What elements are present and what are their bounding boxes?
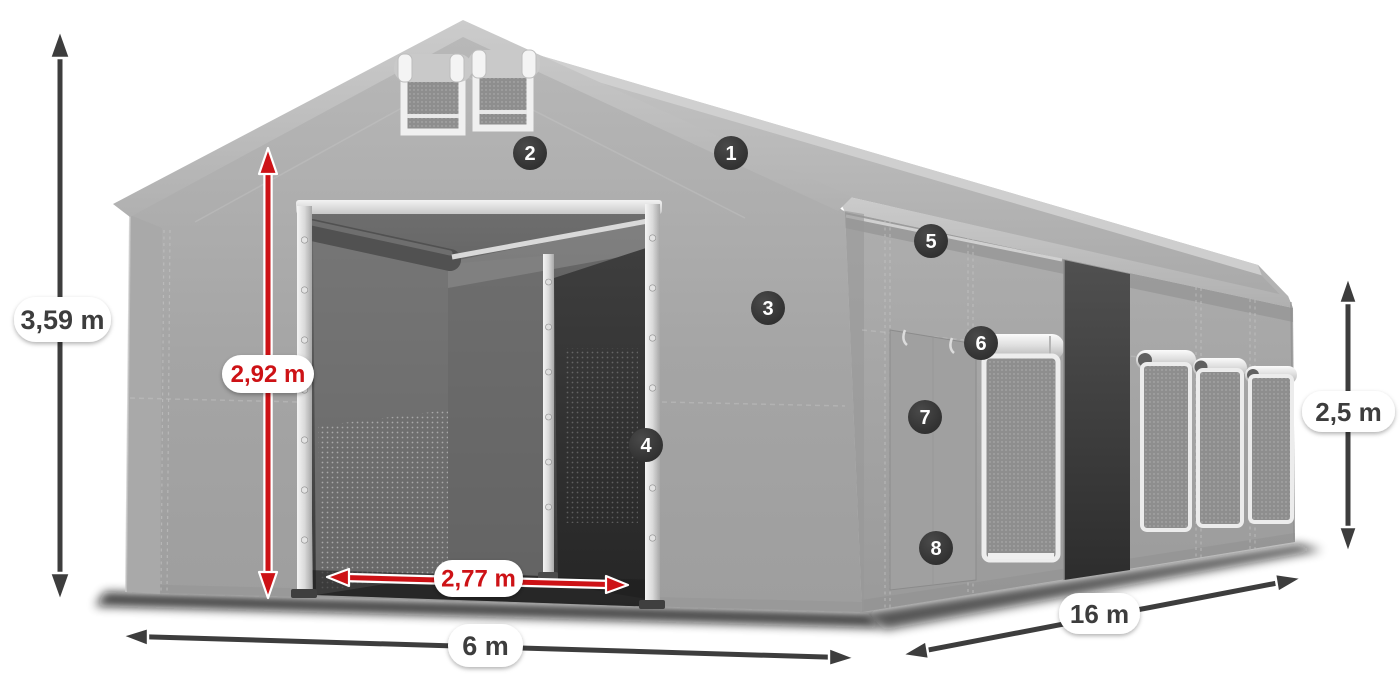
feature-marker-1[interactable]: 1 — [714, 136, 748, 170]
dimension-label-entrance-height: 2,92 m — [222, 355, 314, 393]
entrance-width-value: 2,77 m — [441, 566, 516, 593]
roof-vent-right — [468, 50, 540, 128]
side-mesh-window-2 — [1193, 358, 1247, 526]
product-dimension-diagram: 3,59 m 2,92 m 2,77 m 6 m 16 m 2,5 m 1 2 … — [0, 0, 1400, 700]
feature-marker-8[interactable]: 8 — [919, 531, 953, 565]
feature-marker-5[interactable]: 5 — [914, 224, 948, 258]
feature-marker-7-number: 7 — [919, 407, 930, 429]
entrance-header-beam — [296, 200, 662, 214]
dimension-label-side-height: 2,5 m — [1302, 391, 1395, 432]
feature-marker-8-number: 8 — [930, 538, 941, 560]
feature-marker-7[interactable]: 7 — [908, 400, 942, 434]
feature-marker-6[interactable]: 6 — [964, 326, 998, 360]
side-mesh-window-3 — [1245, 366, 1297, 522]
roof-vent-left — [394, 54, 472, 132]
feature-marker-6-number: 6 — [975, 333, 986, 355]
feature-marker-3-number: 3 — [762, 298, 773, 320]
side-height-value: 2,5 m — [1315, 397, 1382, 427]
total-height-value: 3,59 m — [20, 305, 104, 335]
feature-marker-1-number: 1 — [725, 143, 736, 165]
side-entrance-opening — [1064, 260, 1130, 580]
entrance-height-value: 2,92 m — [231, 361, 306, 388]
feature-marker-3[interactable]: 3 — [751, 291, 785, 325]
tent-illustration — [113, 20, 1297, 612]
feature-marker-2-number: 2 — [524, 143, 535, 165]
tent-dimension-illustration: 3,59 m 2,92 m 2,77 m 6 m 16 m 2,5 m 1 2 … — [0, 0, 1400, 700]
dimension-label-entrance-width: 2,77 m — [434, 560, 523, 597]
front-entrance-opening — [291, 200, 665, 609]
dimension-label-width: 6 m — [448, 624, 523, 667]
length-value: 16 m — [1070, 599, 1129, 629]
side-window — [976, 334, 1064, 560]
width-value: 6 m — [462, 631, 509, 661]
feature-marker-2[interactable]: 2 — [513, 136, 547, 170]
feature-marker-4-number: 4 — [640, 435, 652, 457]
feature-marker-5-number: 5 — [925, 231, 936, 253]
dimension-label-total-height: 3,59 m — [14, 297, 111, 342]
dimension-label-length: 16 m — [1059, 593, 1140, 634]
feature-marker-4[interactable]: 4 — [629, 428, 663, 462]
side-mesh-window-1 — [1136, 350, 1196, 530]
